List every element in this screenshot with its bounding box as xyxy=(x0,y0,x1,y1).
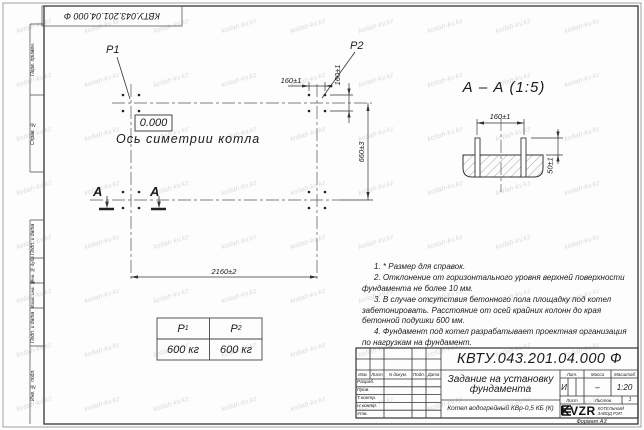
title-block-doc-number: КВТУ.043.201.04.000 Ф xyxy=(441,348,638,370)
col-ndocum: N докум. xyxy=(384,370,412,379)
row-tkontr: Т.контр. xyxy=(357,395,384,403)
drawing-sheet: kotlah-kv.kzkotlah-kv.kzkotlah-kv.kzkotl… xyxy=(0,0,644,430)
plan-axes xyxy=(90,84,501,281)
kvzr-coil-icon xyxy=(561,404,572,416)
mass-value: – xyxy=(584,378,611,396)
frame-field-sprav-no: Справ. № xyxy=(30,95,44,172)
title-block-product: Котел водогрейный КВр-0,5 КБ (К) xyxy=(443,400,558,418)
load-point-p2-label: P2 xyxy=(350,40,363,52)
sheets-header: Листов xyxy=(584,396,622,404)
dim-section-bolt-pitch: 160±1 xyxy=(482,111,518,121)
load-leaders xyxy=(117,52,355,99)
section-bolt xyxy=(475,138,480,177)
top-stamp-doc-number: КВТУ.043.201.04.000 Ф xyxy=(42,6,182,26)
plan-dimension-arrows xyxy=(131,85,370,279)
loads-table-header-p1: P1 xyxy=(157,318,209,339)
kvzr-logo: KVZR КОТЕЛЬНЫЙ ЗАВОД РЭП xyxy=(561,404,637,418)
lit-value: И xyxy=(560,378,568,396)
col-data: Дата xyxy=(426,370,441,379)
elevation-label: 0.000 xyxy=(135,115,172,131)
boiler-axis-label: Ось симетрии котла xyxy=(116,132,260,146)
dim-row-pitch: 660±3 xyxy=(356,135,366,169)
row-prov: Пров. xyxy=(357,387,384,395)
note-3: 3. В случае отсутствия бетонного пола пл… xyxy=(362,295,630,326)
mass-header: Масса xyxy=(584,370,611,378)
section-bolt xyxy=(521,138,526,177)
loads-table-value-p2: 600 кг xyxy=(210,339,262,360)
dim-bolt-pitch-y: 160±1 xyxy=(332,60,342,90)
sheet-header: Лист xyxy=(560,396,584,404)
dim-foundation-length: 2160±2 xyxy=(194,266,254,276)
col-izm: Изм. xyxy=(356,370,370,379)
scale-value: 1:20 xyxy=(611,378,638,396)
sheets-value: 1 xyxy=(622,396,638,404)
row-nkontr: Н.контр. xyxy=(357,402,384,410)
frame-field-podp-data-1: Подп. и дата xyxy=(30,220,44,258)
frame-field-perv-primen: Перв. примен. xyxy=(30,24,44,95)
technical-notes: 1. * Размер для справок. 2. Отклонение о… xyxy=(362,262,630,349)
dim-section-bolt-height: 50±1 xyxy=(546,153,555,179)
title-block-title: Задание на установку фундамента xyxy=(441,370,560,400)
left-field-boxes xyxy=(30,6,182,424)
plan-dimension-lines xyxy=(131,82,373,277)
col-podp: Подп. xyxy=(412,370,426,379)
format-label: Формат А3 xyxy=(545,418,638,426)
frame-field-vzam-inv: Взам. инв. № xyxy=(30,283,44,308)
note-4: 4. Фундамент под котел разрабатывает про… xyxy=(362,327,630,348)
section-letter-left: А xyxy=(93,184,102,199)
row-razrab: Разраб. xyxy=(357,379,384,387)
frame-field-podp-data-2: Подп. и дата xyxy=(30,308,44,346)
kvzr-logo-caption: КОТЕЛЬНЫЙ ЗАВОД РЭП xyxy=(598,406,624,416)
section-view-title: А – А (1:5) xyxy=(448,78,560,96)
dim-bolt-pitch-x: 160±1 xyxy=(276,75,306,85)
scale-header: Масштаб xyxy=(611,370,638,378)
loads-table-header-p2: P2 xyxy=(210,318,262,339)
row-utv: Утв. xyxy=(357,410,384,418)
note-1: 1. * Размер для справок. xyxy=(362,262,630,272)
section-letter-right: А xyxy=(150,184,159,199)
lit-header: Лит. xyxy=(560,370,584,378)
note-2: 2. Отклонение от горизонтального уровня … xyxy=(362,273,630,294)
frame-field-inv-podl: Инв. № подл. xyxy=(30,346,44,424)
col-list: Лист xyxy=(370,370,384,379)
load-point-p1-label: P1 xyxy=(106,44,119,56)
loads-table-value-p1: 600 кг xyxy=(157,339,209,360)
